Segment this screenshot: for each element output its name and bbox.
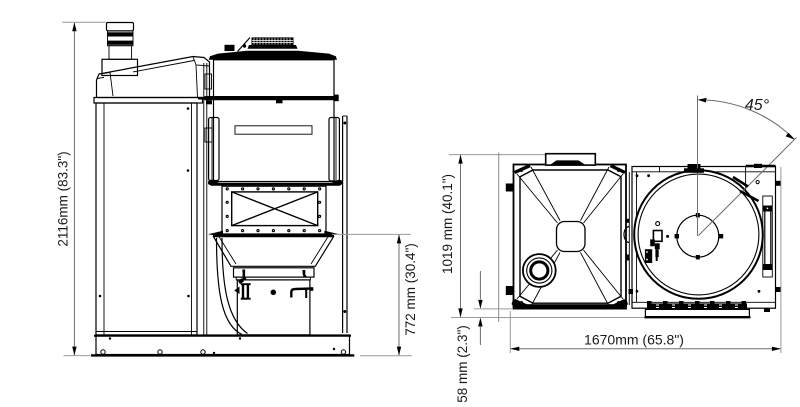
svg-text:772 mm (30.4"): 772 mm (30.4") (403, 243, 418, 336)
svg-text:58 mm (2.3"): 58 mm (2.3") (455, 325, 470, 403)
svg-text:1019 mm (40.1"): 1019 mm (40.1") (440, 174, 455, 274)
svg-text:45°: 45° (745, 97, 770, 114)
svg-text:1670mm (65.8"): 1670mm (65.8") (584, 332, 684, 348)
svg-text:2116mm (83.3"): 2116mm (83.3") (56, 151, 71, 246)
